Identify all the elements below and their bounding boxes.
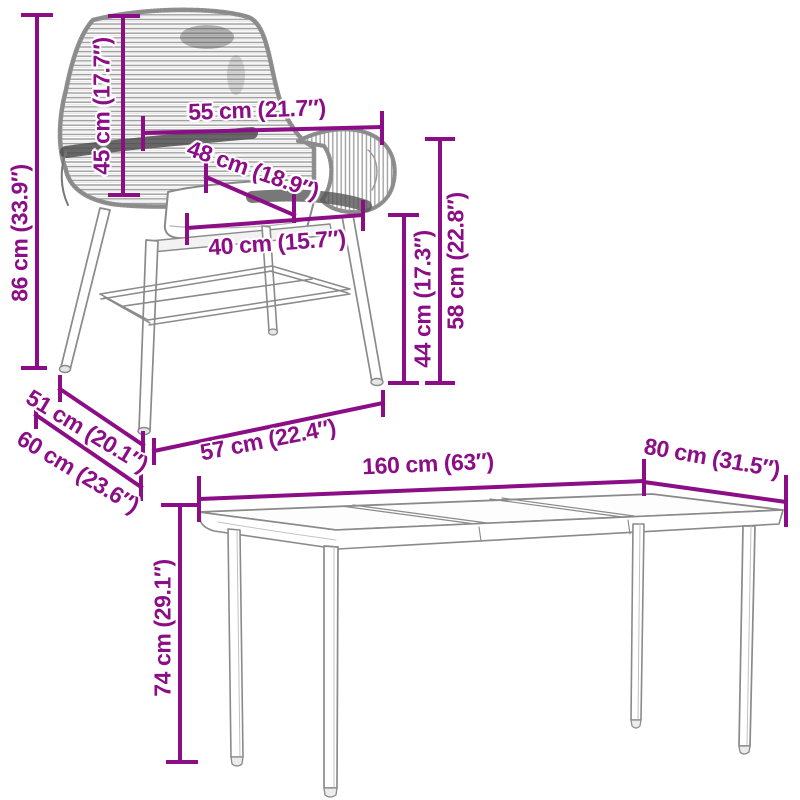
dim-table-height-label: 74 cm (29.1″) [150, 559, 177, 697]
dim-chair-top-width-label: 55 cm (21.7″) [188, 94, 326, 126]
diagram-artwork [0, 0, 800, 800]
dim-chair-back-height-label: 45 cm (17.7″) [89, 37, 116, 175]
dim-chair-total-height-label: 86 cm (33.9″) [7, 164, 34, 302]
product-dimension-diagram: 86 cm (33.9″) 45 cm (17.7″) 55 cm (21.7″… [0, 0, 800, 800]
chair-leg-front-left [139, 240, 158, 431]
backrest-shading [180, 25, 234, 49]
dim-table-length-label: 160 cm (63″) [362, 448, 495, 481]
chair-stretchers [100, 266, 350, 325]
chair-leg-front-right [342, 215, 382, 382]
table-leg-front-right [739, 526, 755, 746]
table-leg-back-left [228, 529, 243, 757]
table-leg-back-right [631, 524, 644, 720]
chair-leg-back-left [61, 208, 110, 370]
table-leg-front-left [324, 546, 338, 788]
table-drawing [198, 494, 783, 797]
dim-chair-arm-height-label: 58 cm (22.8″) [443, 192, 470, 330]
dim-chair-seat-height-label: 44 cm (17.3″) [410, 230, 437, 368]
